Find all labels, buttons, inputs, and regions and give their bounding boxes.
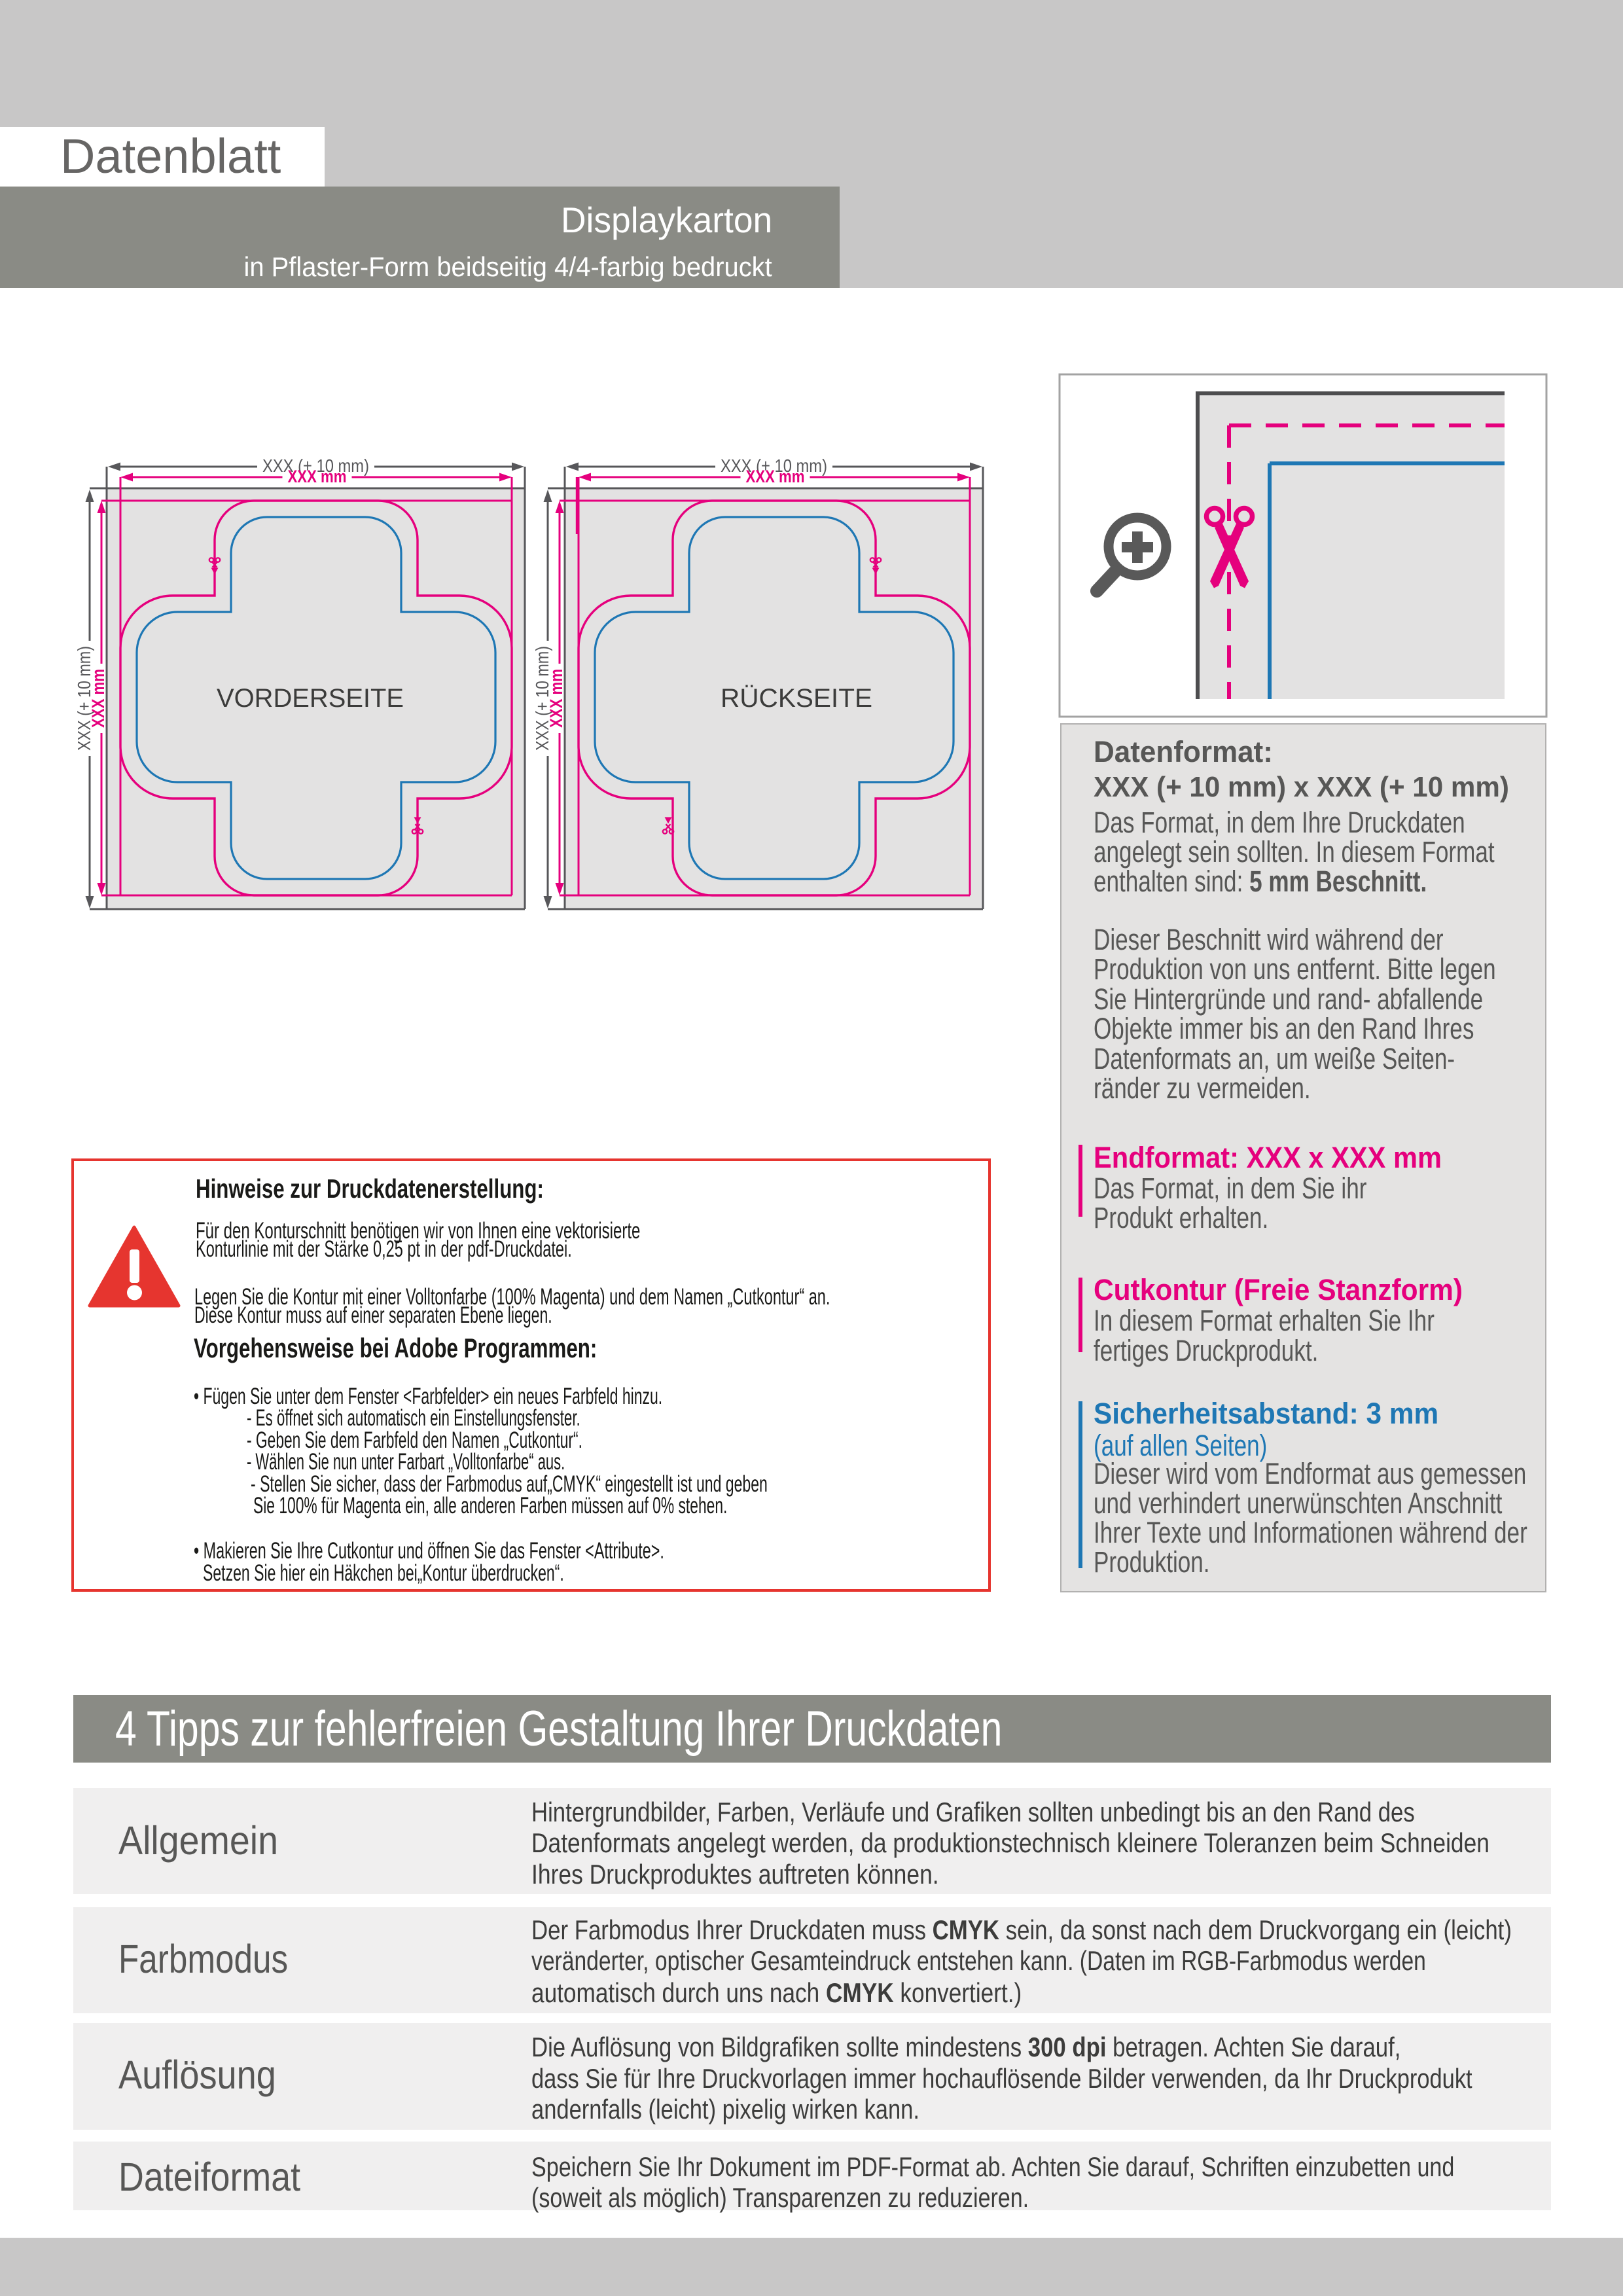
svg-text:XXX mm: XXX mm [746,467,805,486]
svg-text:XXX mm: XXX mm [88,669,108,728]
svg-text:VORDERSEITE: VORDERSEITE [217,684,404,713]
svg-text:XXX mm: XXX mm [546,669,566,728]
svg-text:XXX mm: XXX mm [288,467,347,486]
svg-text:RÜCKSEITE: RÜCKSEITE [721,684,872,713]
